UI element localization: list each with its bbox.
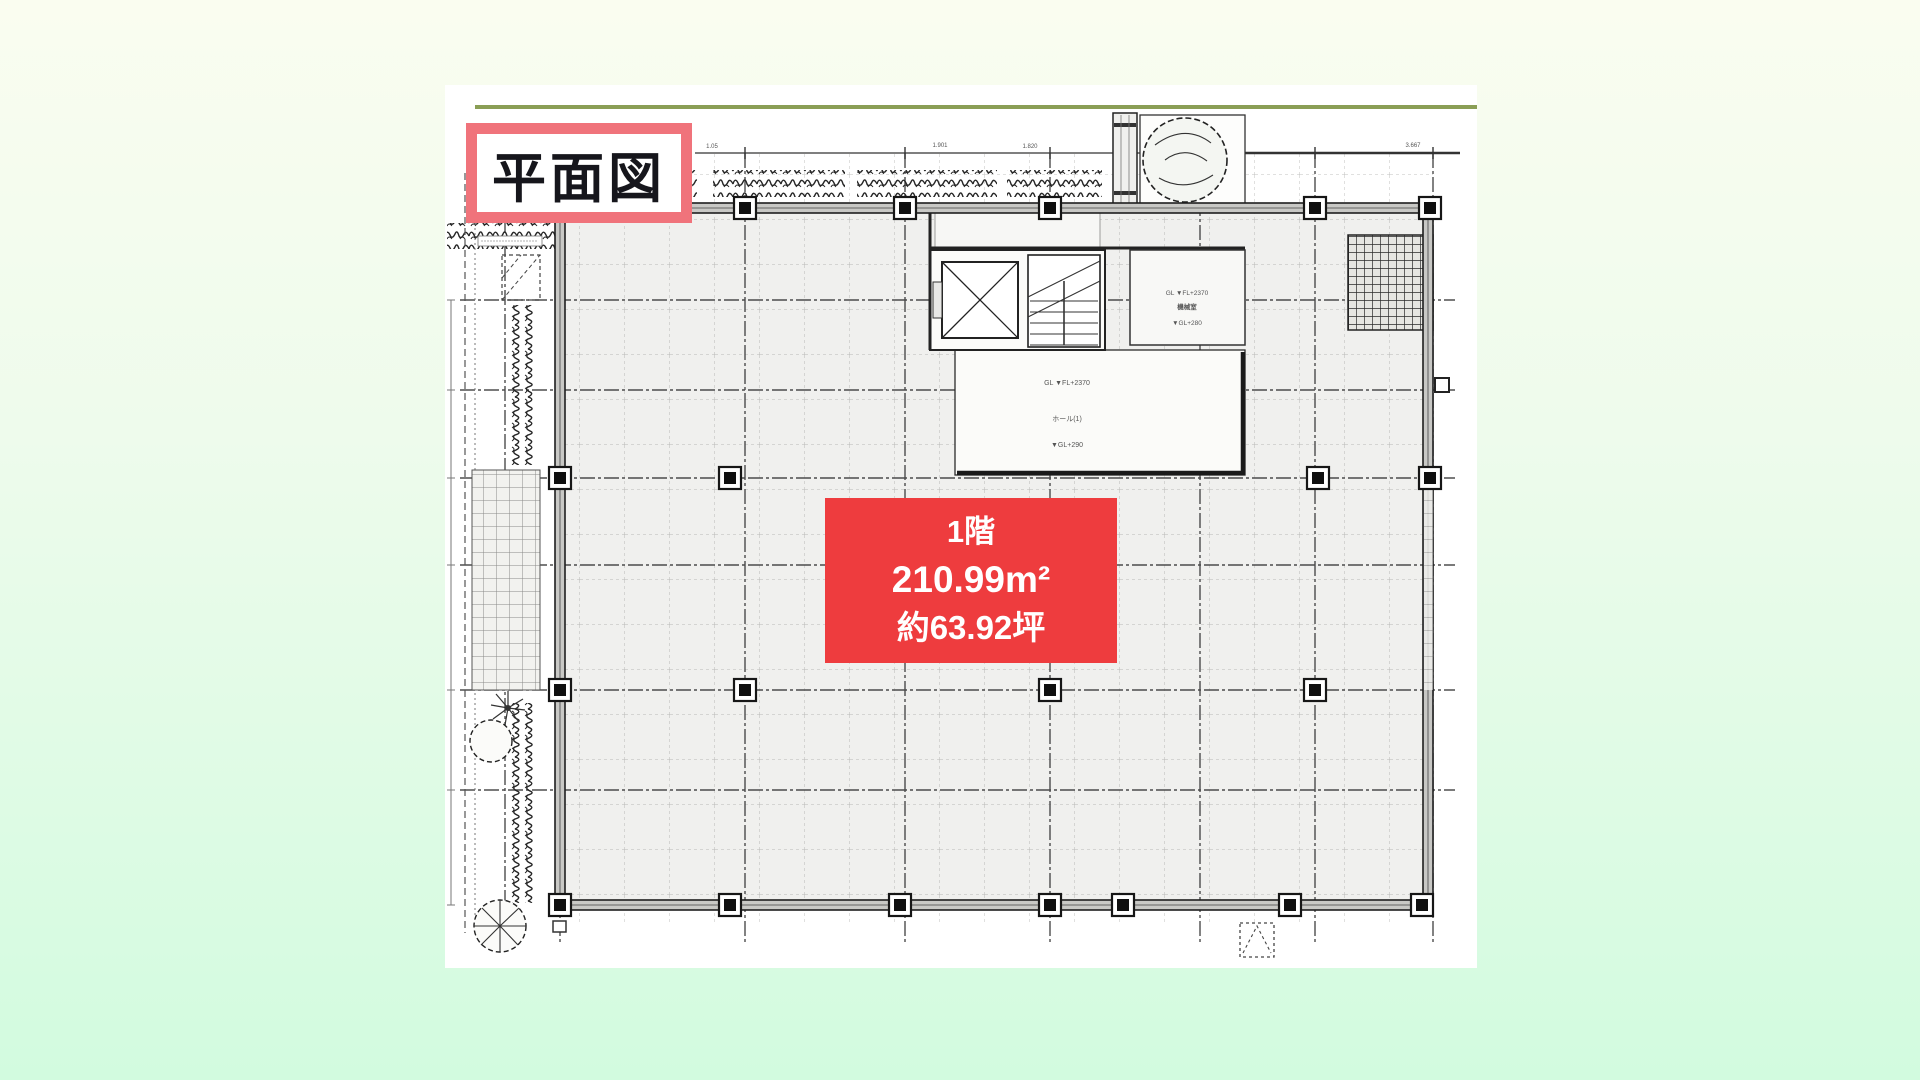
ramp-symbol	[502, 255, 540, 300]
entrance-porch	[935, 213, 1100, 248]
hall-annotation: GL ▼FL+2370	[1044, 380, 1090, 387]
unit-area-sqm: 210.99m²	[892, 554, 1050, 605]
dimension-label: 1.901	[932, 143, 948, 149]
hall-annotation: ▼GL+290	[1051, 442, 1083, 449]
elevator	[933, 262, 1018, 338]
unit-area-label: 1階 210.99m² 約63.92坪	[825, 498, 1117, 663]
dimension-label: 1.05	[706, 144, 718, 150]
plan-title: 平面図	[492, 134, 666, 213]
entrance-hall	[955, 350, 1245, 475]
machine-room	[1130, 250, 1245, 345]
tree-symbol	[1140, 115, 1245, 205]
tree-symbol-round	[470, 720, 512, 762]
machine-room-annotation: ▼GL+280	[1172, 320, 1202, 327]
plan-title-box: 平面図	[466, 123, 692, 223]
unit-floor: 1階	[947, 511, 995, 554]
right-wall-marker	[1435, 378, 1449, 392]
machine-room-label: 機械室	[1177, 302, 1197, 311]
core-rooms	[930, 208, 1245, 475]
machine-room-annotation: GL ▼FL+2370	[1166, 290, 1209, 297]
corner-marker	[553, 921, 566, 932]
dimension-label: 3.667	[1405, 143, 1421, 149]
staircase	[1028, 255, 1100, 347]
entrance-mark	[1240, 923, 1274, 957]
page-background: { "drawing": { "title_label": "平面図", "un…	[0, 0, 1920, 1080]
left-landscape-strip	[465, 173, 566, 952]
hedge-left-lower	[509, 703, 537, 903]
floorplan-sheet: 1.05 1.901 1.820 3.667	[445, 85, 1477, 968]
tree-symbol-spiral	[474, 900, 526, 952]
hall-label: ホール(1)	[1052, 415, 1082, 423]
gate-post	[1113, 113, 1137, 207]
hedge-left-upper	[507, 305, 537, 465]
dimension-label: 1.820	[1022, 144, 1038, 150]
hatched-terrace-topright	[1348, 235, 1433, 330]
tile-terrace	[472, 470, 540, 690]
accent-line	[475, 105, 1477, 109]
unit-area-tsubo: 約63.92坪	[897, 605, 1046, 651]
